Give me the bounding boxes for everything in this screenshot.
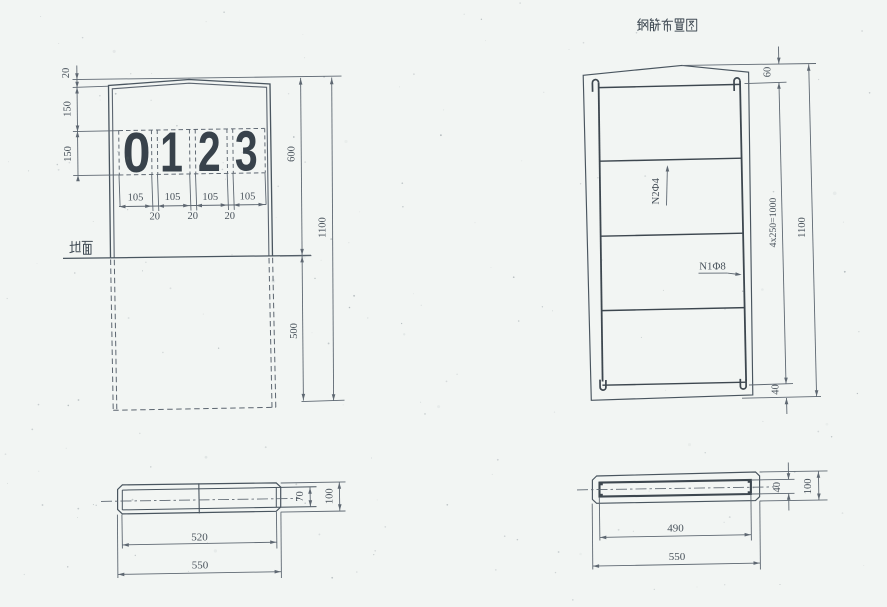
svg-text:100: 100: [803, 479, 814, 495]
svg-text:3: 3: [235, 119, 258, 183]
svg-text:N1Φ8: N1Φ8: [699, 261, 726, 273]
svg-text:20: 20: [61, 68, 72, 79]
svg-text:105: 105: [202, 192, 218, 203]
svg-text:4x250=1000: 4x250=1000: [768, 198, 779, 248]
svg-text:490: 490: [667, 522, 684, 534]
svg-text:60: 60: [763, 67, 774, 78]
svg-text:550: 550: [192, 559, 209, 571]
svg-text:150: 150: [63, 146, 74, 162]
svg-text:105: 105: [240, 191, 256, 202]
svg-text:70: 70: [295, 491, 306, 502]
svg-text:500: 500: [289, 323, 300, 339]
svg-text:40: 40: [772, 482, 783, 493]
svg-text:1100: 1100: [318, 217, 329, 238]
svg-text:1100: 1100: [797, 217, 808, 238]
svg-text:40: 40: [771, 384, 782, 395]
svg-text:520: 520: [191, 532, 208, 544]
svg-text:600: 600: [287, 146, 298, 162]
svg-text:N2Φ4: N2Φ4: [650, 177, 662, 204]
svg-text:105: 105: [128, 193, 144, 204]
svg-text:20: 20: [225, 211, 236, 222]
svg-text:105: 105: [165, 192, 181, 203]
svg-text:2: 2: [198, 119, 221, 183]
svg-text:100: 100: [324, 488, 335, 504]
svg-text:150: 150: [63, 101, 74, 117]
svg-text:20: 20: [188, 211, 199, 222]
svg-text:550: 550: [669, 551, 686, 563]
svg-text:1: 1: [160, 120, 183, 184]
svg-text:20: 20: [150, 212, 161, 223]
svg-text:0: 0: [123, 121, 151, 185]
